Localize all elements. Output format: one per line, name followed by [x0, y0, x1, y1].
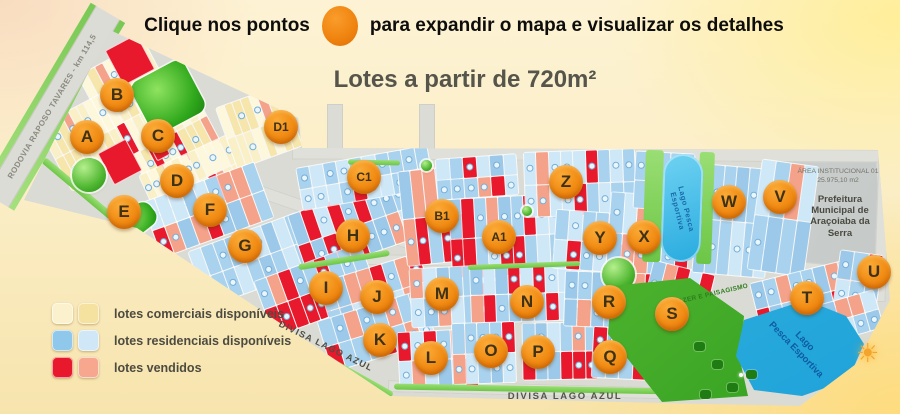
- map-marker-K[interactable]: K: [363, 323, 397, 357]
- lot-number-dot: [100, 109, 107, 116]
- lot: [451, 178, 465, 198]
- lot-number-dot: [421, 238, 426, 243]
- lot-number-dot: [582, 283, 587, 288]
- legend-row-sold: lotes vendidos: [52, 357, 291, 378]
- map-marker-Y[interactable]: Y: [583, 221, 617, 255]
- lot-number-dot: [576, 334, 581, 339]
- lot-number-dot: [839, 290, 845, 296]
- lot-number-dot: [455, 186, 460, 191]
- roundabout-green-ball: [421, 160, 432, 171]
- map-marker-J[interactable]: J: [360, 280, 394, 314]
- map-marker-O[interactable]: O: [474, 334, 508, 368]
- lot: [464, 178, 478, 198]
- tree-icon: [694, 342, 705, 351]
- map-marker-F[interactable]: F: [193, 193, 227, 227]
- lot-number-dot: [455, 256, 460, 261]
- lot-number-dot: [169, 148, 176, 155]
- legend-swatch-commercial-solid: [52, 303, 73, 324]
- map-marker-N[interactable]: N: [510, 285, 544, 319]
- roundabout-green-ball: [72, 158, 106, 192]
- lot: [476, 156, 490, 176]
- lot: [503, 154, 517, 174]
- lot: [586, 150, 598, 182]
- lot-number-dot: [177, 144, 184, 151]
- lot-number-dot: [614, 163, 619, 168]
- lot-number-dot: [871, 317, 877, 323]
- lot-number-dot: [301, 175, 307, 181]
- lot-number-dot: [511, 277, 516, 282]
- lot-number-dot: [457, 367, 462, 372]
- lot: [573, 351, 585, 379]
- map-marker-W[interactable]: W: [712, 185, 746, 219]
- lot: [561, 351, 573, 379]
- lot-number-dot: [254, 107, 260, 113]
- lot: [622, 149, 634, 181]
- lot: [537, 185, 549, 217]
- lot-number-dot: [249, 143, 255, 149]
- lot-number-dot: [576, 362, 581, 367]
- lot: [577, 299, 590, 326]
- map-marker-C[interactable]: C: [141, 119, 175, 153]
- map-marker-I[interactable]: I: [309, 271, 343, 305]
- lot-number-dot: [529, 198, 534, 203]
- map-marker-X[interactable]: X: [627, 220, 661, 254]
- lot-number-dot: [500, 306, 505, 311]
- lot-number-dot: [238, 113, 244, 119]
- lot-number-dot: [341, 168, 347, 174]
- lot-number-dot: [507, 365, 512, 370]
- lot-number-dot: [614, 210, 619, 215]
- map-marker-M[interactable]: M: [425, 277, 459, 311]
- lot: [536, 152, 548, 184]
- map-marker-P[interactable]: P: [521, 335, 555, 369]
- lot-number-dot: [414, 281, 419, 286]
- legend-swatch-residential-light: [78, 330, 99, 351]
- lot-number-dot: [344, 189, 350, 195]
- lot: [524, 153, 536, 185]
- lot-number-dot: [858, 320, 864, 326]
- lot-number-dot: [549, 275, 554, 280]
- tree-icon: [746, 370, 757, 379]
- lot: [568, 211, 582, 240]
- page-title: Lotes a partir de 720m²: [300, 66, 630, 94]
- lot: [452, 324, 465, 354]
- orange-point-icon: [322, 6, 358, 46]
- legend-swatch-commercial-light: [78, 303, 99, 324]
- lot-number-dot: [639, 163, 644, 168]
- sun-icon: ☀: [856, 338, 879, 369]
- lot-number-dot: [474, 278, 479, 283]
- lot: [578, 272, 591, 299]
- lot: [483, 266, 495, 294]
- lot-number-dot: [220, 252, 226, 258]
- lot: [410, 269, 424, 298]
- lot-number-dot: [390, 309, 396, 315]
- lot-number-dot: [327, 170, 333, 176]
- lot-block: [435, 153, 520, 201]
- lot-number-dot: [393, 225, 399, 231]
- lot-number-dot: [509, 182, 514, 187]
- lot: [461, 199, 474, 238]
- lot-number-dot: [230, 279, 236, 285]
- lot-number-dot: [468, 336, 473, 341]
- lot-number-dot: [321, 217, 327, 223]
- lot: [491, 176, 505, 196]
- map-marker-T[interactable]: T: [790, 281, 824, 315]
- lot-number-dot: [262, 290, 268, 296]
- lot: [437, 179, 451, 199]
- legend: lotes comerciais disponíveis lotes resid…: [52, 303, 291, 378]
- lot-number-dot: [626, 162, 631, 167]
- map-marker-Z[interactable]: Z: [549, 165, 583, 199]
- roundabout-green-ball: [522, 206, 532, 216]
- lot: [478, 177, 492, 197]
- legend-label-sold: lotes vendidos: [114, 361, 202, 375]
- lot-number-dot: [492, 254, 497, 259]
- lot-number-dot: [515, 213, 520, 218]
- lot-number-dot: [469, 366, 474, 371]
- lot: [555, 210, 569, 239]
- map-marker-C1[interactable]: C1: [347, 160, 381, 194]
- lot-number-dot: [192, 136, 199, 143]
- lot-number-dot: [504, 253, 509, 258]
- lot-number-dot: [408, 239, 413, 244]
- lot-number-dot: [305, 196, 311, 202]
- lot-number-dot: [173, 234, 179, 240]
- lot-number-dot: [478, 215, 483, 220]
- lot-number-dot: [517, 252, 522, 257]
- map-marker-Q[interactable]: Q: [593, 340, 627, 374]
- map-marker-H[interactable]: H: [336, 219, 370, 253]
- lot-number-dot: [584, 253, 589, 258]
- lot-number-dot: [578, 197, 583, 202]
- lot-number-dot: [193, 162, 200, 169]
- lot-number-dot: [415, 310, 420, 315]
- legend-swatch-sold-solid: [52, 357, 73, 378]
- lot-number-dot: [147, 160, 154, 167]
- lot-number-dot: [541, 198, 546, 203]
- map-marker-B[interactable]: B: [100, 78, 134, 112]
- legend-label-commercial: lotes comerciais disponíveis: [114, 307, 284, 321]
- lot: [560, 323, 572, 351]
- lot-number-dot: [550, 304, 555, 309]
- lot: [449, 158, 463, 178]
- lot-number-dot: [429, 309, 434, 314]
- map-marker-E[interactable]: E: [107, 195, 141, 229]
- lot: [564, 299, 577, 326]
- lot: [436, 159, 450, 179]
- lot-number-dot: [225, 184, 231, 190]
- lot-number-dot: [307, 305, 313, 311]
- lot-number-dot: [482, 184, 487, 189]
- legend-row-residential: lotes residenciais disponíveis: [52, 330, 291, 351]
- lot-number-dot: [734, 246, 739, 251]
- lot-number-dot: [318, 194, 324, 200]
- lot: [398, 332, 412, 360]
- legend-row-commercial: lotes comerciais disponíveis: [52, 303, 291, 324]
- lot-number-dot: [843, 262, 849, 268]
- lot-number-dot: [571, 252, 576, 257]
- lot-number-dot: [346, 208, 352, 214]
- instruction-suffix: para expandir o mapa e visualizar os det…: [370, 15, 784, 37]
- map-marker-B1[interactable]: B1: [425, 199, 459, 233]
- lot-number-dot: [467, 165, 472, 170]
- lot-number-dot: [371, 199, 377, 205]
- lot-number-dot: [337, 325, 343, 331]
- lot: [463, 157, 477, 177]
- lot: [490, 155, 504, 175]
- lot: [546, 292, 558, 320]
- lot-number-dot: [297, 277, 303, 283]
- lot-number-dot: [363, 317, 369, 323]
- map-marker-V[interactable]: V: [763, 180, 797, 214]
- lot-number-dot: [160, 239, 166, 245]
- lot: [587, 183, 599, 215]
- map-marker-R[interactable]: R: [592, 285, 626, 319]
- lot: [484, 295, 496, 323]
- lot-number-dot: [406, 156, 412, 162]
- lot: [496, 294, 508, 322]
- tree-icon: [727, 383, 738, 392]
- legend-label-residential: lotes residenciais disponíveis: [114, 334, 291, 348]
- site-map: Clique nos pontos para expandir o mapa e…: [0, 0, 900, 414]
- lot-number-dot: [573, 223, 578, 228]
- lot-number-dot: [769, 289, 775, 295]
- lot-number-dot: [145, 184, 152, 191]
- lot-number-dot: [381, 229, 387, 235]
- lot-number-dot: [569, 282, 574, 287]
- tree-icon: [700, 390, 711, 399]
- lot-number-dot: [502, 214, 507, 219]
- map-marker-A[interactable]: A: [70, 120, 104, 154]
- lot: [598, 150, 610, 182]
- lot-number-dot: [755, 240, 761, 246]
- instruction-prefix: Clique nos pontos: [144, 15, 310, 37]
- lot-number-dot: [603, 196, 608, 201]
- lot-number-dot: [266, 266, 272, 272]
- map-marker-D[interactable]: D: [160, 164, 194, 198]
- lot-number-dot: [209, 154, 216, 161]
- lot-number-dot: [468, 185, 473, 190]
- legend-swatch-residential-solid: [52, 330, 73, 351]
- lot-number-dot: [494, 163, 499, 168]
- tree-icon: [712, 360, 723, 369]
- lot-number-dot: [589, 164, 594, 169]
- prefeitura-label: Prefeitura Municipal de Araçoiaba da Ser…: [800, 194, 880, 239]
- map-marker-L[interactable]: L: [414, 341, 448, 375]
- map-marker-A1[interactable]: A1: [482, 220, 516, 254]
- lot: [495, 266, 507, 294]
- lot: [504, 175, 518, 195]
- lot-number-dot: [536, 276, 541, 281]
- lot-number-dot: [625, 251, 630, 256]
- lot: [411, 298, 425, 327]
- lot-number-dot: [751, 193, 756, 198]
- lot-number-dot: [441, 187, 446, 192]
- lot-number-dot: [403, 372, 408, 377]
- sparkle-icon: [739, 373, 743, 377]
- lot-number-dot: [528, 166, 533, 171]
- area-institucional-size-label: 25.975,10 m2: [794, 177, 882, 184]
- area-institucional-label: ÁREA INSTITUCIONAL 01: [794, 168, 882, 175]
- divisa-lago-azul-bottom-label: DIVISA LAGO AZUL: [480, 391, 650, 402]
- legend-swatch-sold-light: [78, 357, 99, 378]
- header-instruction: Clique nos pontos para expandir o mapa e…: [0, 6, 900, 46]
- map-marker-D1[interactable]: D1: [264, 110, 298, 144]
- map-marker-U[interactable]: U: [857, 255, 891, 289]
- lot: [565, 271, 578, 298]
- lot: [470, 267, 482, 295]
- lot-number-dot: [388, 273, 394, 279]
- lot: [610, 150, 622, 182]
- lot-number-dot: [402, 344, 407, 349]
- lot: [453, 354, 466, 384]
- lot-number-dot: [756, 292, 762, 298]
- lot-number-dot: [506, 334, 511, 339]
- map-marker-S[interactable]: S: [655, 297, 689, 331]
- lot: [471, 295, 483, 323]
- map-marker-G[interactable]: G: [228, 229, 262, 263]
